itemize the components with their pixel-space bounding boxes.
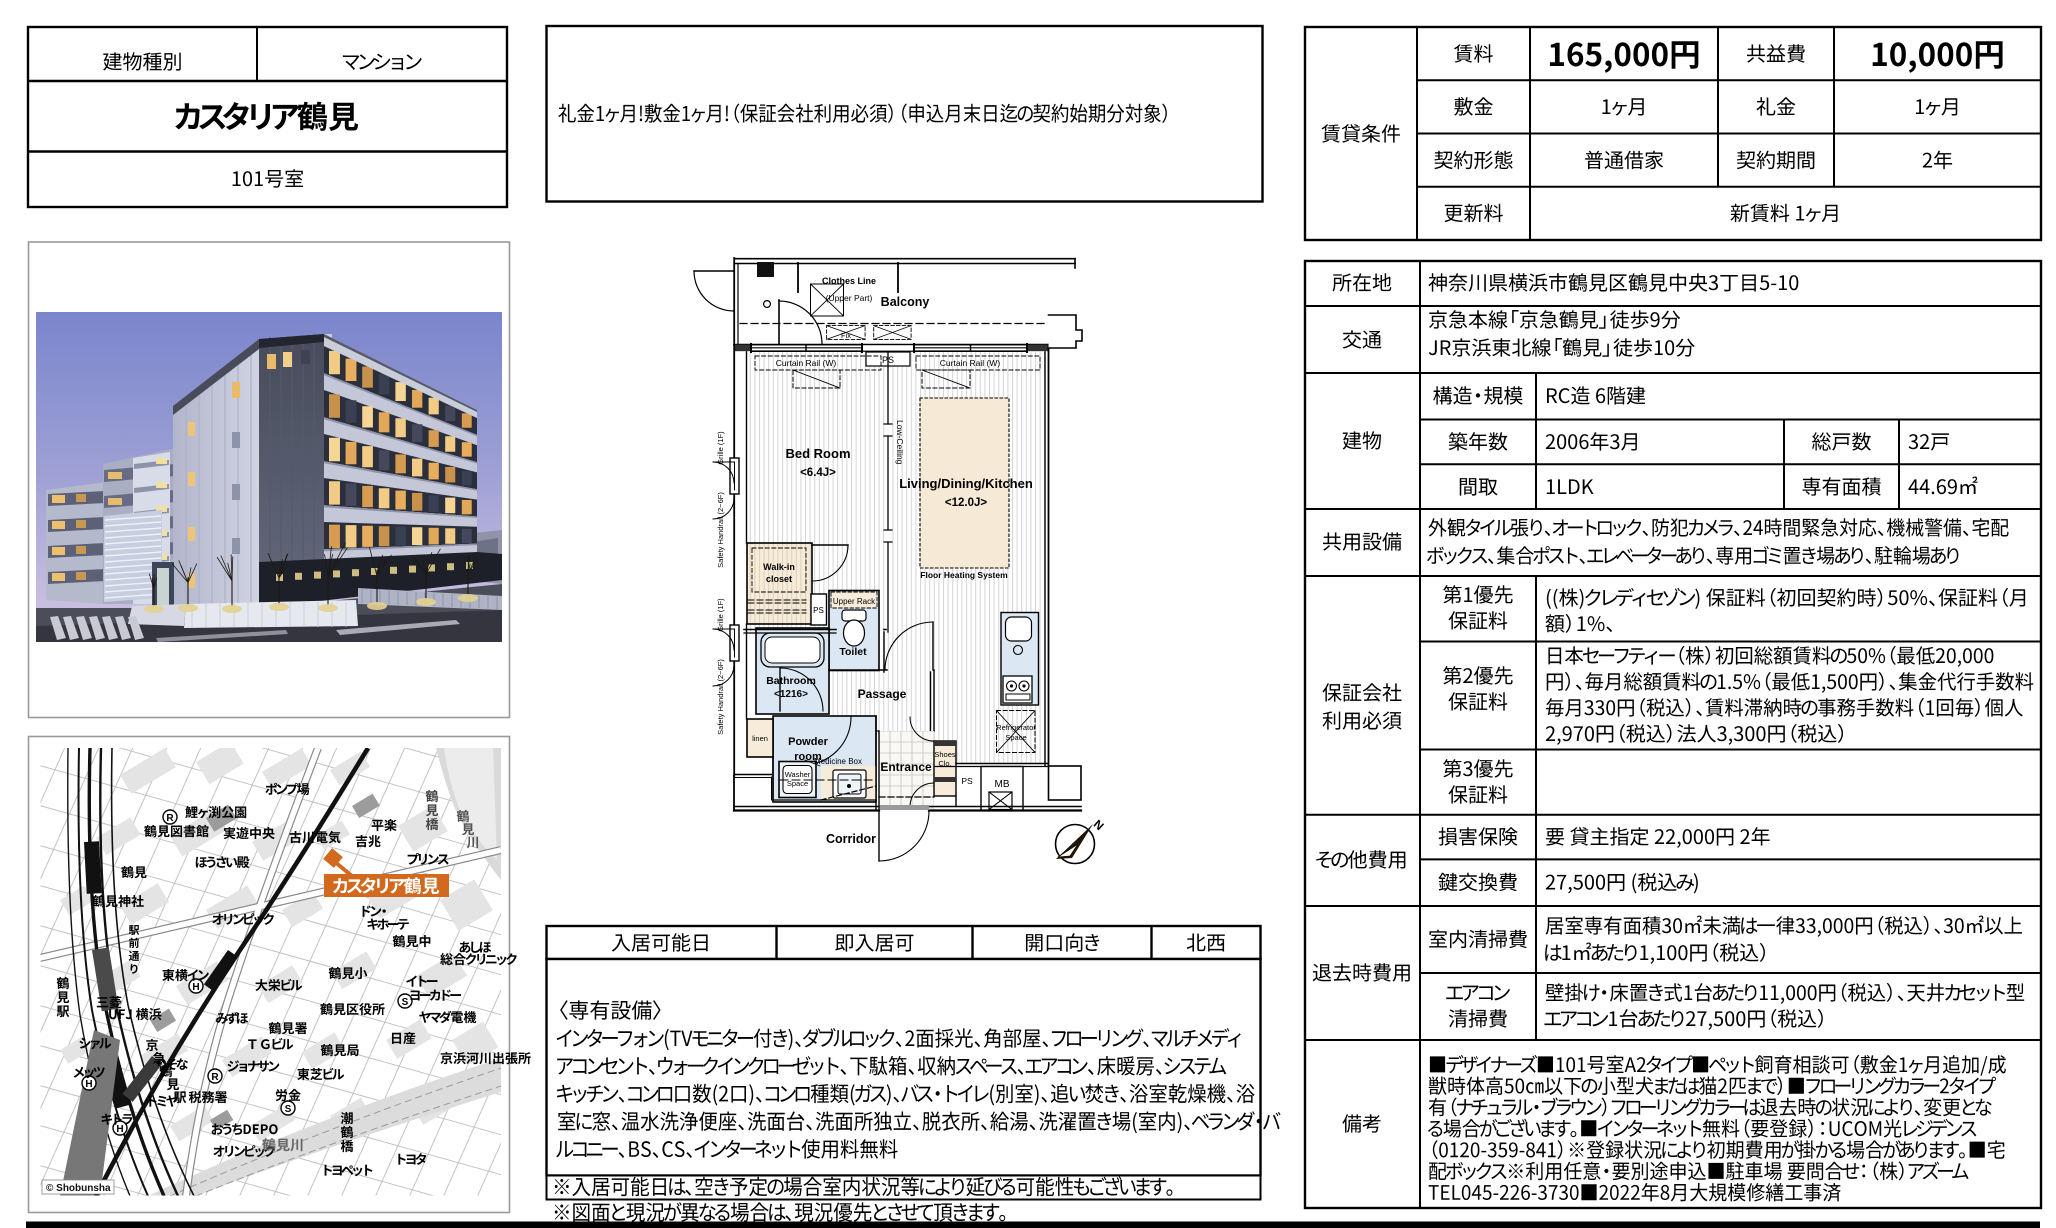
svg-text:<1216>: <1216> [774,689,808,700]
svg-text:Toilet: Toilet [839,646,867,658]
svg-text:S: S [285,1104,292,1115]
svg-text:Floor Heating System: Floor Heating System [920,570,1008,580]
svg-text:Living/Dining/Kitchen: Living/Dining/Kitchen [899,476,1033,491]
svg-text:R: R [166,813,174,824]
svg-text:H: H [116,1124,123,1135]
svg-text:Entrance: Entrance [880,760,932,774]
svg-text:Space: Space [1005,733,1026,742]
svg-text:N: N [1091,817,1107,833]
svg-text:Corridor: Corridor [826,832,876,846]
svg-text:© Shobunsha: © Shobunsha [46,1183,111,1194]
svg-text:R: R [211,1072,219,1083]
svg-text:Safety Handrail (2~6F): Safety Handrail (2~6F) [716,659,725,735]
svg-text:PS: PS [961,776,973,786]
svg-text:Low-Ceiling: Low-Ceiling [895,420,905,465]
svg-text:Curtain Rail (W): Curtain Rail (W) [940,358,1001,368]
svg-text:Passage: Passage [858,687,907,701]
svg-text:Grille (1F): Grille (1F) [716,431,725,465]
svg-text:H: H [192,982,199,993]
svg-text:MB: MB [995,779,1010,790]
svg-text:Refrigerator: Refrigerator [996,723,1036,732]
svg-text:H: H [85,1079,92,1090]
svg-text:Grille (1F): Grille (1F) [716,598,725,632]
svg-text:Safety Handrail (2~6F): Safety Handrail (2~6F) [716,492,725,568]
svg-text:Shoes: Shoes [934,750,956,759]
svg-text:Powder: Powder [788,736,828,748]
svg-text:linen: linen [752,734,768,743]
svg-text:Washer: Washer [785,770,811,779]
svg-text:S: S [402,997,409,1008]
svg-text:Bed Room: Bed Room [786,446,851,461]
svg-text:Medicine Box: Medicine Box [814,757,862,766]
svg-text:Walk-in: Walk-in [763,562,795,572]
svg-text:Curtain Rail (W): Curtain Rail (W) [776,358,837,368]
svg-text:Fix: Fix [841,331,851,340]
svg-text:Bathroom: Bathroom [766,675,816,687]
svg-text:<12.0J>: <12.0J> [945,497,987,509]
svg-text:<6.4J>: <6.4J> [800,467,836,479]
svg-text:Balcony: Balcony [881,295,930,309]
svg-text:closet: closet [766,574,792,584]
svg-text:PS: PS [813,606,824,615]
svg-text:Upper Rack: Upper Rack [833,597,876,606]
